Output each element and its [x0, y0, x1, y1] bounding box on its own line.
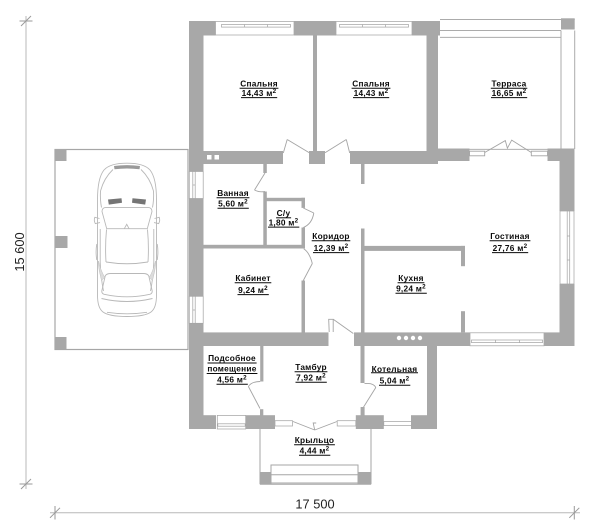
svg-text:7,92 м2: 7,92 м2 [296, 373, 326, 383]
svg-text:4,56 м2: 4,56 м2 [217, 374, 247, 384]
svg-text:Кухня: Кухня [398, 273, 424, 283]
svg-text:Тамбур: Тамбур [295, 362, 327, 372]
svg-text:14,43 м2: 14,43 м2 [354, 88, 389, 98]
svg-text:12,39 м2: 12,39 м2 [314, 243, 349, 253]
svg-text:1,80 м2: 1,80 м2 [269, 217, 299, 227]
svg-text:4,44 м2: 4,44 м2 [300, 446, 330, 456]
svg-text:Ванная: Ванная [217, 188, 249, 198]
svg-text:5,04 м2: 5,04 м2 [380, 376, 410, 386]
svg-text:9,24 м2: 9,24 м2 [396, 284, 426, 294]
svg-text:Подсобное: Подсобное [208, 353, 256, 363]
svg-text:16,65 м2: 16,65 м2 [492, 88, 527, 98]
svg-text:Гостиная: Гостиная [490, 231, 530, 241]
svg-text:Кабинет: Кабинет [235, 273, 270, 283]
svg-text:27,76 м2: 27,76 м2 [493, 243, 528, 253]
svg-text:17 500: 17 500 [295, 497, 334, 512]
svg-text:5,60 м2: 5,60 м2 [218, 199, 248, 209]
svg-text:15 600: 15 600 [12, 232, 27, 271]
svg-text:9,24 м2: 9,24 м2 [238, 285, 268, 295]
svg-text:Коридор: Коридор [312, 231, 349, 241]
svg-text:помещение: помещение [207, 364, 256, 374]
svg-text:Крыльцо: Крыльцо [295, 435, 335, 445]
svg-text:14,43 м2: 14,43 м2 [242, 88, 277, 98]
